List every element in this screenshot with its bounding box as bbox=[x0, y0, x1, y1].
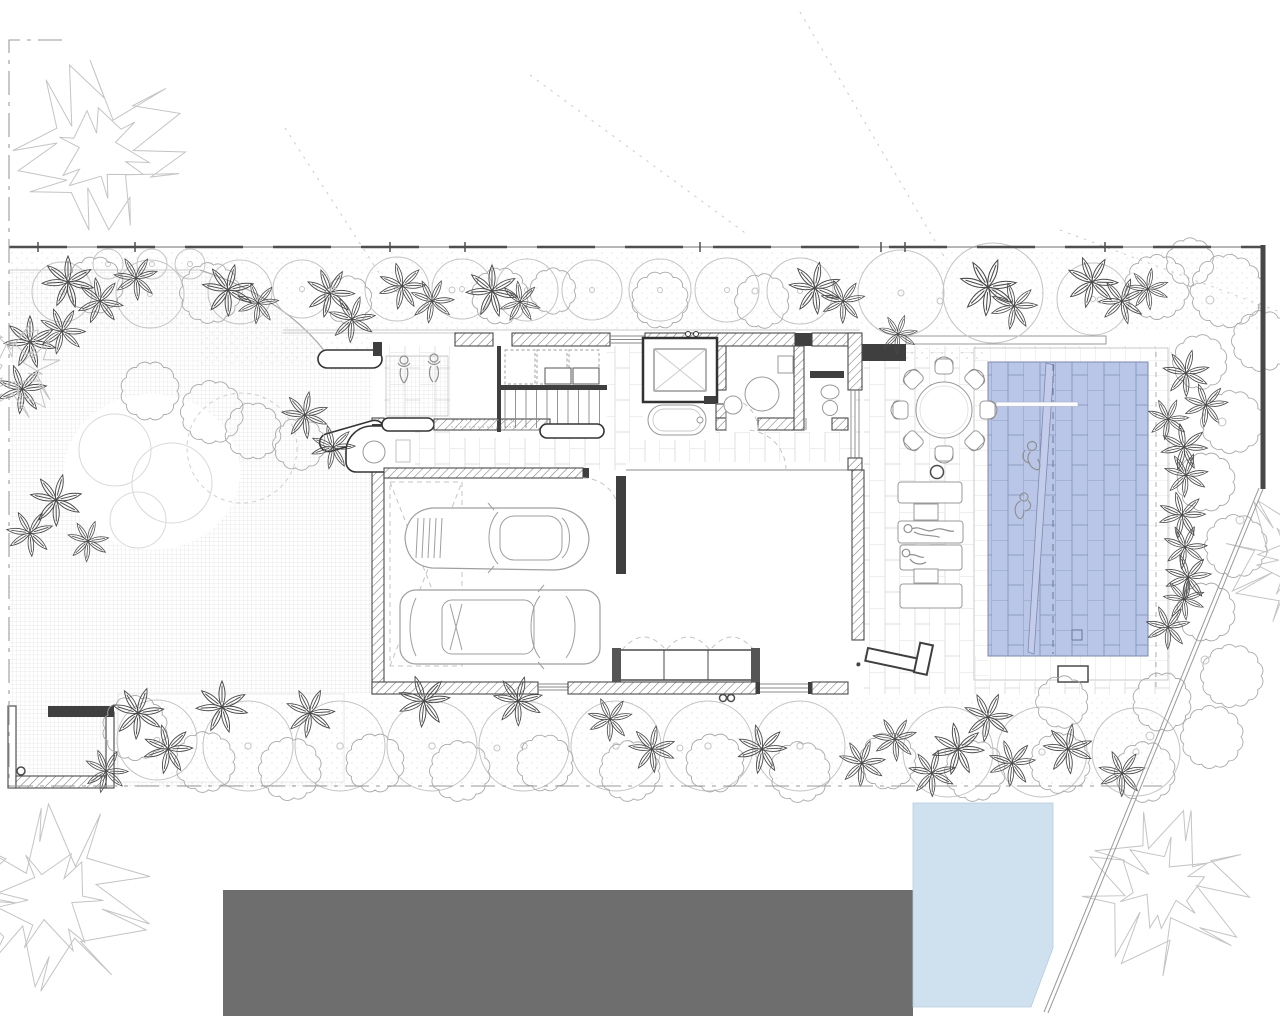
driveway-road bbox=[223, 890, 913, 1016]
stipple-strip-top bbox=[9, 250, 1263, 330]
large-tree-canopy bbox=[1082, 810, 1249, 976]
toilet-bowl bbox=[821, 385, 839, 399]
wc-vanity bbox=[810, 371, 844, 378]
elevator bbox=[643, 332, 717, 405]
wavy-shrub bbox=[1177, 583, 1235, 641]
sun-lounger bbox=[898, 482, 962, 503]
wavy-shrub bbox=[1180, 706, 1243, 769]
floor-socket-1 bbox=[720, 695, 727, 702]
sun-loungers bbox=[898, 482, 963, 608]
swimming-pool bbox=[988, 352, 1156, 688]
washbasin bbox=[724, 396, 742, 414]
beam-stipple bbox=[906, 348, 986, 360]
stair-drawer bbox=[573, 368, 599, 384]
house bbox=[283, 330, 1172, 702]
toilet-seat bbox=[823, 401, 838, 416]
wavy-shrub bbox=[1200, 391, 1263, 454]
floor-socket-2 bbox=[728, 695, 735, 702]
pool-step-bar bbox=[996, 402, 1078, 407]
car-sports bbox=[405, 503, 589, 573]
dining-chair bbox=[980, 401, 997, 419]
stair-drawer bbox=[545, 368, 571, 384]
small-plant-circle bbox=[1218, 418, 1226, 426]
terrace-stool bbox=[931, 466, 944, 479]
car-suv bbox=[400, 585, 600, 669]
shower-bench bbox=[778, 356, 793, 373]
bathtub bbox=[648, 405, 706, 435]
dining-table bbox=[916, 382, 972, 438]
side-table bbox=[914, 569, 938, 583]
living-room-floor bbox=[626, 462, 848, 682]
dining-chair bbox=[891, 401, 908, 419]
dining-chair bbox=[935, 446, 953, 463]
wavy-shrub bbox=[1173, 335, 1227, 389]
dining-chair bbox=[935, 357, 953, 374]
wavy-shrub bbox=[1200, 645, 1263, 708]
sun-lounger bbox=[900, 545, 962, 570]
large-tree-canopy bbox=[13, 60, 186, 230]
lawn-patch bbox=[64, 394, 240, 550]
dotted-guide-line bbox=[800, 12, 945, 258]
sun-lounger bbox=[900, 584, 962, 608]
site-plan-drawing bbox=[0, 0, 1280, 1027]
powder-room-fixture bbox=[363, 441, 385, 463]
shower-circle bbox=[745, 377, 779, 411]
dotted-guide-line bbox=[530, 75, 748, 235]
water-area bbox=[913, 803, 1053, 1007]
large-tree-canopy bbox=[0, 804, 150, 991]
side-table bbox=[914, 504, 938, 520]
pool-roof-beam bbox=[906, 336, 1106, 344]
entry-porch-grid bbox=[386, 356, 448, 416]
